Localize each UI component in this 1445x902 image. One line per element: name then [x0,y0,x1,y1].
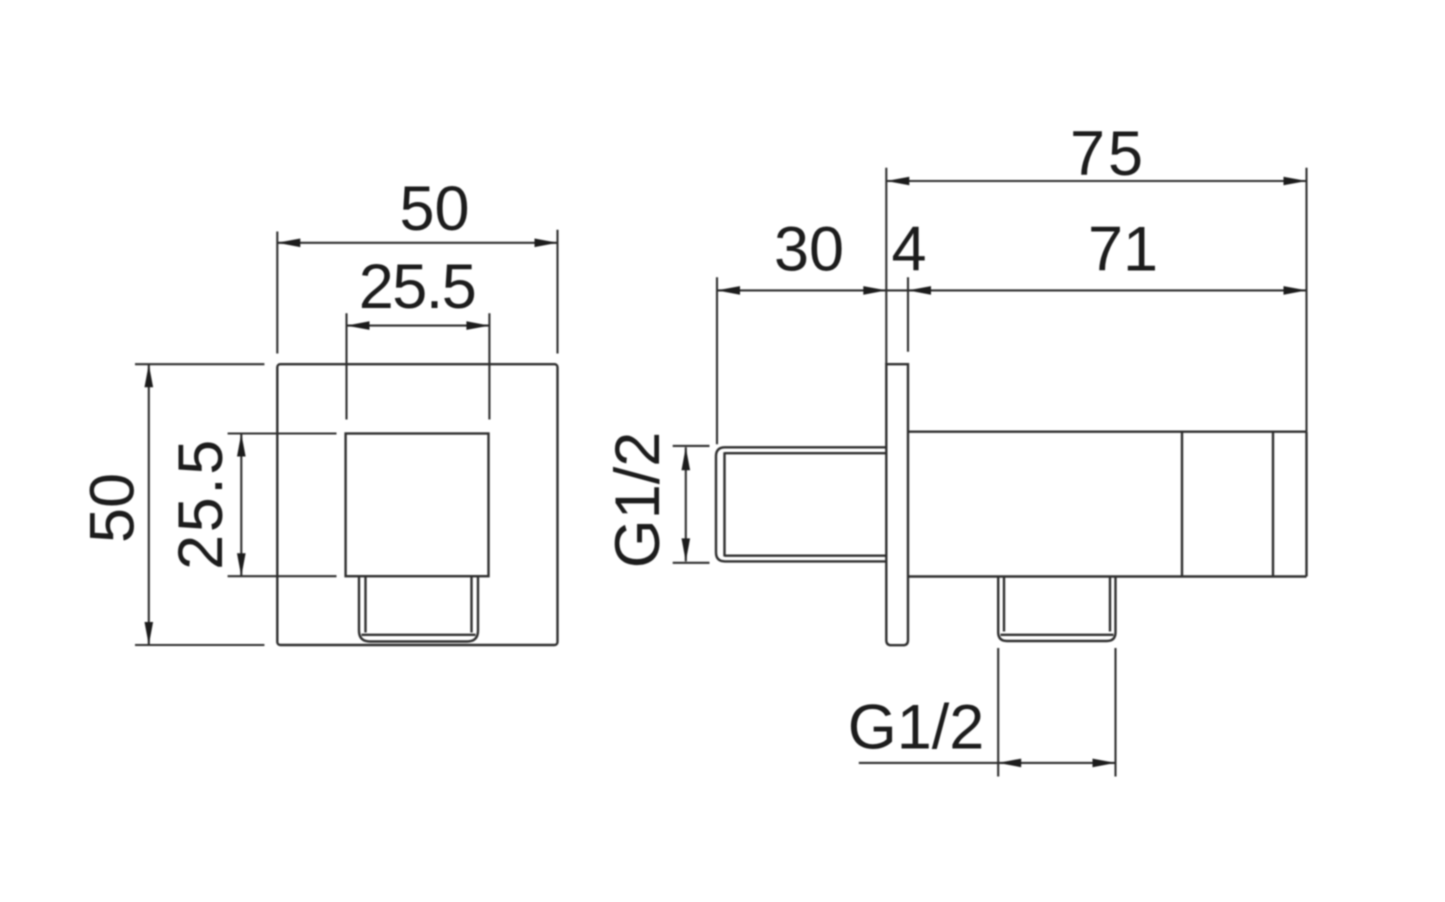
svg-text:30: 30 [774,215,844,285]
svg-text:50: 50 [399,174,469,244]
svg-text:50: 50 [78,473,148,543]
svg-text:4: 4 [891,215,926,285]
svg-text:G1/2: G1/2 [848,693,985,763]
svg-text:G1/2: G1/2 [603,432,673,569]
svg-text:25.5: 25.5 [166,437,236,570]
svg-text:71: 71 [1088,215,1158,285]
svg-text:75: 75 [1070,119,1146,189]
svg-text:25.5: 25.5 [359,252,476,322]
